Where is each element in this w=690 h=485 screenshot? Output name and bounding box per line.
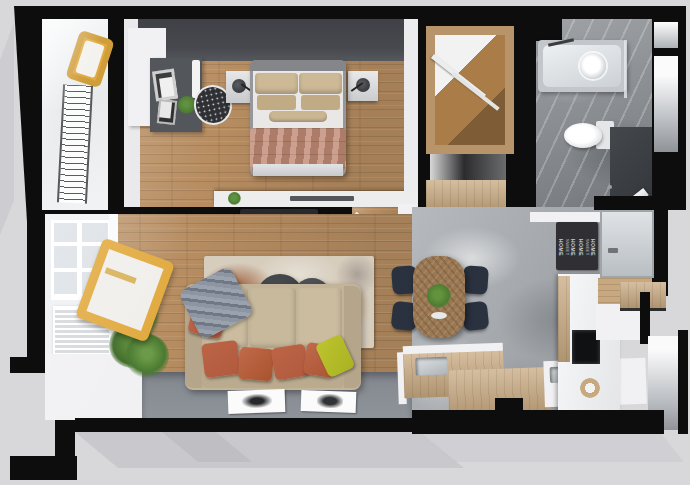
poster-art (317, 394, 343, 409)
bed-pillow-small (257, 95, 296, 110)
floor-poster (301, 390, 357, 413)
sofa-armrest-right (344, 286, 361, 388)
bedroom-accent-wall (138, 19, 418, 61)
bed-pillow (255, 73, 298, 94)
bedroom-right-wall-face (404, 19, 418, 191)
bedroom-desk-unit (150, 58, 202, 132)
centerpiece-plant (427, 284, 451, 308)
bed-pillow (299, 73, 342, 94)
doormat-text-column: HOMESWEETHOME (578, 224, 596, 270)
room-living (45, 214, 412, 420)
service-niche-top (654, 22, 678, 48)
wall-entry-niche-right (678, 330, 688, 434)
toilet-bowl (564, 123, 602, 148)
wall-bottom-notch (495, 398, 523, 414)
poster-art (242, 393, 272, 408)
entrance-door-handle (608, 248, 618, 253)
doormat-text-column: HOMESWEETHOME (558, 224, 576, 270)
dresser-plant (228, 192, 241, 205)
dining-table (413, 256, 465, 338)
floor-plan-canvas: HOMESWEETHOME HOMESWEETHOME (0, 0, 690, 485)
hall-storage-niche (430, 154, 506, 180)
wall-bottom-kitchen (412, 410, 664, 434)
room-hallway (418, 19, 530, 214)
floor-poster (228, 389, 286, 414)
trivet-dish (580, 378, 600, 398)
bathtub (538, 40, 626, 92)
door-handle (608, 185, 612, 189)
bed-bolster (269, 111, 327, 122)
picture-frame (152, 69, 178, 102)
entrance-door (600, 210, 654, 278)
shower-head (580, 53, 606, 79)
dining-set (392, 256, 488, 342)
hall-open-wardrobe (426, 26, 514, 154)
table-dish (431, 312, 447, 319)
armchair-slat (105, 267, 137, 284)
wall-top (18, 6, 668, 19)
dining-chair (462, 301, 490, 331)
doormat: HOMESWEETHOME HOMESWEETHOME (556, 222, 598, 270)
service-niche-tall (654, 56, 678, 152)
cushion-rust (201, 340, 241, 378)
plant-foliage (125, 334, 169, 378)
tall-unit-wood-strip (558, 276, 570, 362)
room-balcony (42, 19, 108, 210)
double-bed (250, 60, 346, 176)
bathroom-corner-notch (536, 19, 562, 41)
wall-bottom-living (75, 418, 417, 432)
bed-headboard (250, 60, 346, 71)
wall-living-left (27, 228, 45, 362)
shower-glass (624, 40, 627, 98)
sofa-seat-cushion (250, 288, 296, 348)
cushion-rust (238, 347, 275, 382)
nightstand-right (348, 71, 378, 101)
room-bathroom (536, 19, 652, 209)
dresser-decor (290, 196, 354, 201)
balcony-light-streak (42, 19, 108, 210)
room-bedroom (124, 19, 418, 207)
bed-pillow-small (301, 95, 340, 110)
picture-frame-2 (157, 99, 177, 125)
bedroom-low-dresser (214, 191, 418, 207)
dining-chair (462, 265, 489, 295)
bed-foot-blanket (253, 164, 343, 176)
kitchen-sink (415, 357, 448, 376)
wall-step-bottom (10, 456, 77, 480)
